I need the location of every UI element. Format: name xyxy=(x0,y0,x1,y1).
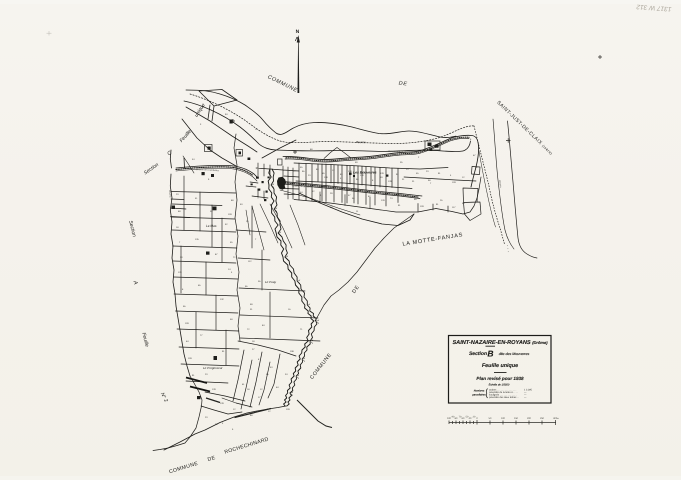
svg-text:Échelle de 1/2500: Échelle de 1/2500 xyxy=(489,383,510,387)
svg-text:250: 250 xyxy=(540,417,545,420)
svg-text:Section: Section xyxy=(469,351,487,357)
svg-text:dite des Mouverres: dite des Mouverres xyxy=(499,352,530,356)
svg-text:DE: DE xyxy=(398,80,408,87)
svg-text:Le Mas: Le Mas xyxy=(206,224,217,228)
svg-text:Le Progesseur: Le Progesseur xyxy=(203,366,224,370)
svg-text:parcellaires: parcellaires xyxy=(471,394,486,397)
svg-text:150: 150 xyxy=(514,417,519,420)
svg-text:200: 200 xyxy=(527,417,532,420)
svg-text:Feuille unique: Feuille unique xyxy=(482,363,518,369)
svg-text:300m: 300m xyxy=(553,417,559,420)
svg-text:Bourne: Bourne xyxy=(356,140,366,144)
svg-text:B: B xyxy=(487,349,493,359)
svg-text:Chemin rural de Beauregard: Chemin rural de Beauregard xyxy=(388,150,416,153)
svg-text:100: 100 xyxy=(501,417,506,420)
svg-text:Plan revisé pour 1938: Plan revisé pour 1938 xyxy=(476,376,524,381)
svg-text:Le Puay: Le Puay xyxy=(265,280,277,284)
svg-text:Nombres: Nombres xyxy=(474,390,485,393)
svg-text:précédés des deux lettres . .: précédés des deux lettres . . xyxy=(489,396,519,399)
svg-text:N: N xyxy=(296,29,300,35)
